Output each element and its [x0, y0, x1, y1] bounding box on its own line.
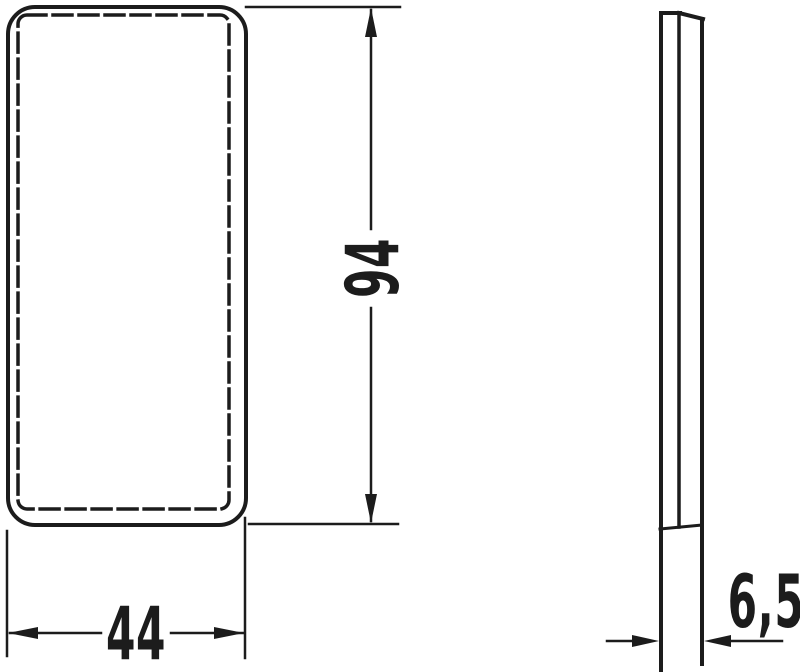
- drawing-canvas: 94 44 6,5: [0, 0, 800, 672]
- height-dimension-label: 94: [332, 238, 416, 298]
- side-top-bevel-line: [679, 13, 703, 19]
- height-dimension: 94: [246, 7, 416, 524]
- front-outline: [8, 7, 246, 525]
- technical-drawing: 94 44 6,5: [0, 0, 800, 672]
- width-dimension-label: 44: [106, 593, 166, 672]
- front-reflector-dashed-outline: [18, 15, 229, 509]
- thickness-arrow-right: [704, 635, 731, 647]
- thickness-arrow-left: [632, 635, 659, 647]
- thickness-dimension-label: 6,5: [728, 561, 800, 645]
- width-arrow-left: [8, 627, 38, 639]
- width-dimension: 44: [7, 518, 245, 672]
- side-step-line: [660, 525, 702, 529]
- front-view: [8, 7, 246, 525]
- height-arrow-top: [365, 8, 377, 37]
- height-arrow-bottom: [365, 494, 377, 523]
- width-arrow-right: [214, 627, 244, 639]
- side-view: [660, 13, 703, 671]
